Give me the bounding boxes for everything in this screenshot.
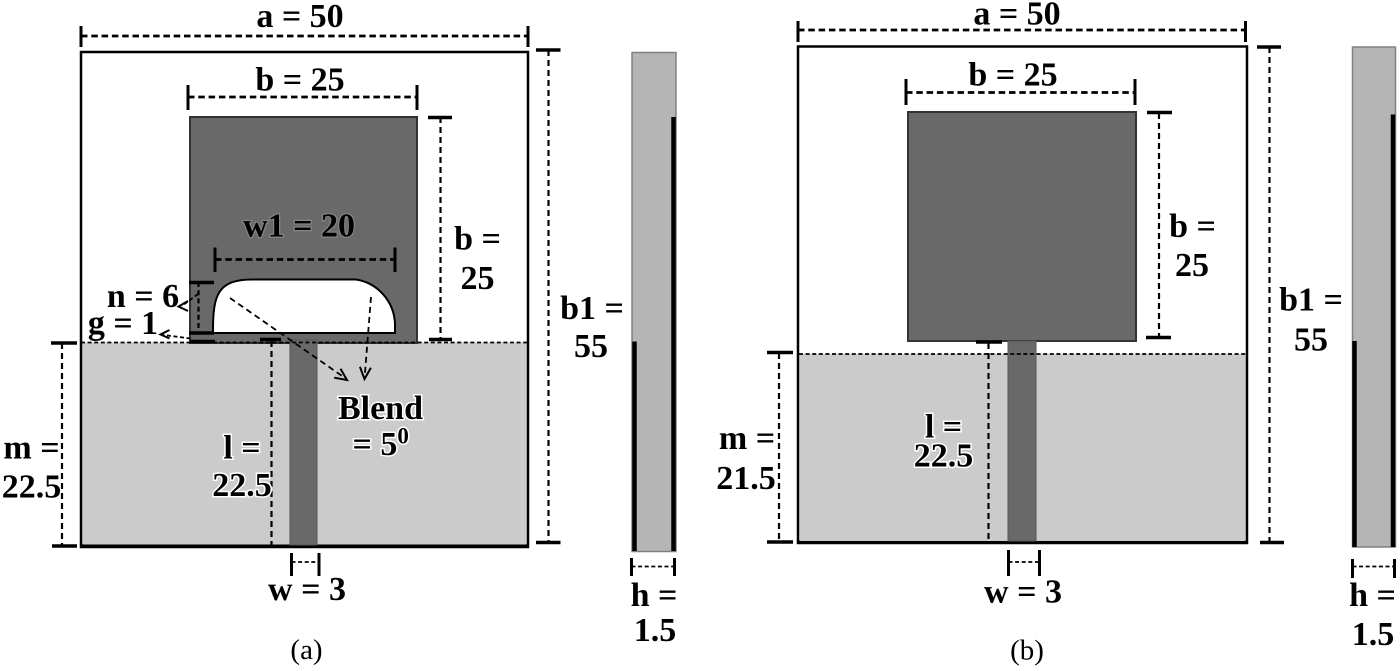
svg-text:w1 = 20: w1 = 20 bbox=[243, 208, 355, 245]
svg-text:b =: b = bbox=[1169, 208, 1216, 245]
svg-text:22.5: 22.5 bbox=[914, 437, 974, 474]
svg-text:1.5: 1.5 bbox=[634, 612, 677, 649]
svg-text:25: 25 bbox=[461, 260, 495, 297]
svg-text:Blend: Blend bbox=[338, 390, 423, 427]
svg-text:55: 55 bbox=[574, 328, 608, 365]
svg-text:h =: h = bbox=[1349, 577, 1396, 614]
svg-text:h =: h = bbox=[631, 577, 678, 614]
svg-text:1.5: 1.5 bbox=[1352, 616, 1395, 653]
svg-text:l =: l = bbox=[223, 430, 260, 467]
svg-text:55: 55 bbox=[1294, 322, 1328, 359]
svg-text:m =: m = bbox=[719, 420, 775, 457]
svg-text:21.5: 21.5 bbox=[716, 460, 776, 497]
svg-text:g = 1: g = 1 bbox=[88, 305, 158, 342]
svg-text:25: 25 bbox=[1175, 247, 1209, 284]
svg-text:b =: b = bbox=[454, 221, 501, 258]
svg-text:a = 50: a = 50 bbox=[256, 0, 343, 35]
svg-text:a = 50: a = 50 bbox=[973, 0, 1060, 33]
svg-text:m =: m = bbox=[3, 430, 59, 467]
svg-text:b1 =: b1 = bbox=[1279, 282, 1343, 319]
svg-text:22.5: 22.5 bbox=[2, 469, 62, 506]
svg-text:w = 3: w = 3 bbox=[984, 574, 1062, 611]
svg-text:(b): (b) bbox=[1010, 635, 1044, 667]
svg-text:(a): (a) bbox=[290, 634, 322, 666]
svg-text:22.5: 22.5 bbox=[212, 467, 272, 504]
svg-text:w = 3: w = 3 bbox=[268, 571, 346, 608]
svg-text:b = 25: b = 25 bbox=[255, 62, 344, 99]
svg-text:b = 25: b = 25 bbox=[968, 57, 1057, 94]
svg-text:b1 =: b1 = bbox=[560, 290, 624, 327]
